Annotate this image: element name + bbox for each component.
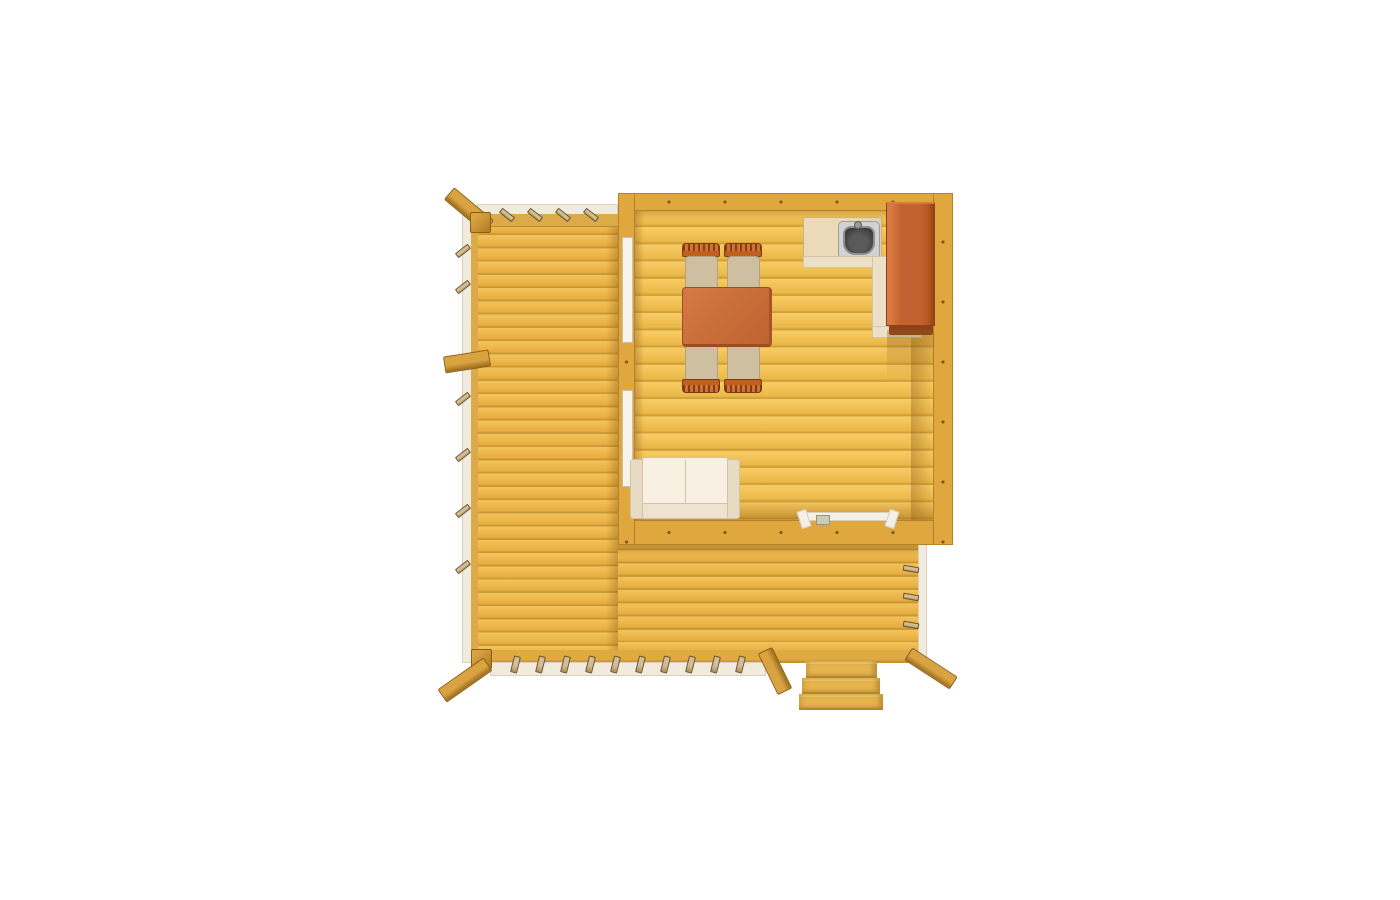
- railing-right-rail: [918, 544, 927, 660]
- stair-tread-3: [799, 694, 883, 710]
- door-handle: [816, 515, 830, 525]
- chair-back-bottom-left: [682, 379, 720, 393]
- chair-back-top-left: [682, 243, 720, 257]
- floor-plan-render: [0, 0, 1400, 900]
- cabin-shadow-on-deck: [618, 545, 918, 557]
- sofa-seat-front: [642, 503, 728, 519]
- chair-seat-top-left: [685, 256, 718, 290]
- corner-post-top-left: [470, 212, 491, 233]
- deck-bottom: [618, 545, 918, 650]
- stair-handrail-right: [904, 648, 957, 690]
- railing-bottom-rail: [490, 662, 766, 676]
- sofa: [630, 457, 740, 521]
- chair-back-bottom-right: [724, 379, 762, 393]
- faucet-icon: [854, 221, 862, 229]
- chair-back-top-right: [724, 243, 762, 257]
- dining-table: [682, 287, 772, 347]
- window-left-upper: [622, 237, 633, 343]
- sofa-arm-right: [726, 459, 740, 519]
- railing-left-base: [471, 214, 478, 663]
- sofa-cushion-divider: [685, 460, 686, 504]
- chair-seat-top-right: [727, 256, 760, 290]
- stair-tread-2: [802, 678, 880, 694]
- chair-seat-bottom-left: [685, 344, 718, 384]
- cabinet-floor-shadow: [887, 330, 934, 380]
- deck-left: [477, 222, 618, 650]
- sink-bowl: [843, 226, 875, 255]
- chair-seat-bottom-right: [727, 344, 760, 384]
- handrail-beam-bottom-left: [437, 657, 492, 702]
- wall-shadow-on-deck: [606, 222, 618, 650]
- stair-tread-1: [806, 661, 877, 678]
- tall-cabinet: [886, 202, 935, 326]
- cabin-wall-bottom: [618, 520, 953, 545]
- cabin-wall-right: [933, 193, 953, 545]
